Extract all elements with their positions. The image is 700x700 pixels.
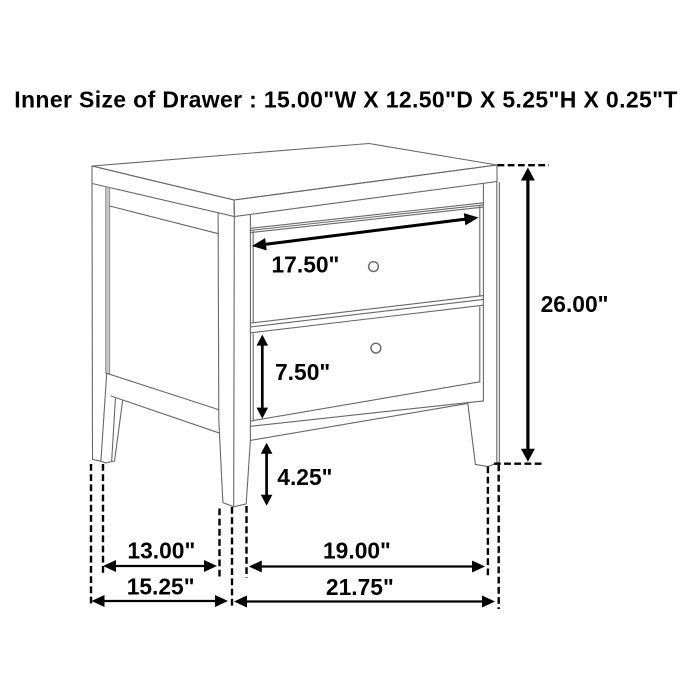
svg-text:21.75": 21.75" [326,574,394,600]
svg-text:7.50": 7.50" [275,359,330,385]
svg-text:Inner Size of Drawer : 15.00"W: Inner Size of Drawer : 15.00"W X 12.50"D… [14,86,677,112]
svg-text:4.25": 4.25" [277,464,332,490]
svg-text:17.50": 17.50" [272,252,340,278]
svg-text:15.25": 15.25" [127,574,195,600]
svg-text:13.00": 13.00" [127,538,195,564]
svg-text:26.00": 26.00" [541,291,609,317]
svg-text:19.00": 19.00" [323,538,391,564]
